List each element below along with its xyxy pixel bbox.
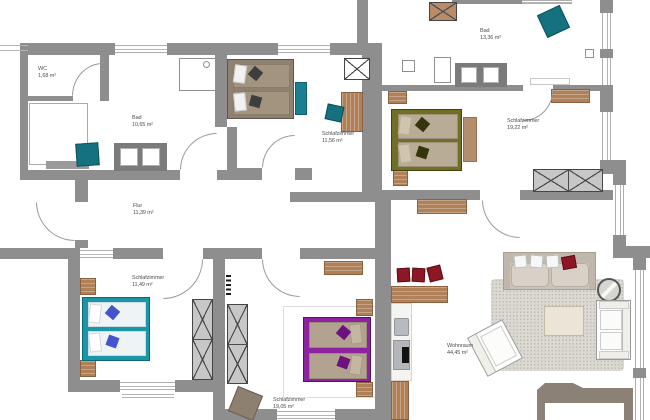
wall: [613, 174, 626, 185]
pillow: [546, 255, 560, 269]
pillow: [88, 303, 102, 323]
room-area: 11,39 m²: [133, 210, 154, 217]
door-arc: [180, 133, 217, 170]
wardrobe: [227, 304, 248, 384]
basin: [461, 67, 477, 83]
room-label-wc: WC 1,68 m²: [38, 66, 56, 79]
room-name: Schlafzimmer: [322, 131, 354, 138]
room-area: 19,22 m²: [507, 125, 539, 132]
bar-stool-red: [397, 268, 411, 283]
room-label-schlafzimmer-top: Schlafzimmer 11,56 m²: [322, 131, 354, 144]
bathtub: [434, 57, 451, 83]
pillow: [233, 92, 247, 111]
wardrobe-section: [228, 305, 247, 344]
pillow: [398, 143, 413, 163]
wardrobe-section: [193, 339, 212, 379]
chair-teal: [325, 103, 345, 122]
sofa-armrest: [589, 253, 595, 289]
sofa-seat: [600, 332, 622, 350]
sofa-backrest: [622, 305, 630, 355]
room-label-schlafzimmer-bottom-middle: Schlafzimmer 19,05 m²: [273, 397, 305, 410]
wall: [613, 246, 650, 258]
window: [635, 270, 644, 368]
wardrobe-section: [228, 344, 247, 384]
side-table-round: [597, 278, 621, 302]
room-label-schlafzimmer-right: Schlafzimmer 19,22 m²: [507, 118, 539, 131]
shaft-symbol: [344, 58, 370, 80]
room-name: Wohnraum: [447, 343, 473, 350]
wall: [600, 49, 613, 58]
kitchen-oven: [402, 347, 409, 363]
wall: [375, 192, 391, 420]
door-arc: [72, 63, 103, 96]
wall: [600, 0, 613, 13]
double-washbasin: [455, 63, 507, 87]
sideboard: [324, 261, 363, 275]
wall: [213, 248, 225, 420]
pillow: [349, 323, 364, 344]
room-area: 13,36 m²: [480, 35, 501, 42]
wall: [335, 409, 376, 420]
double-washbasin: [114, 143, 167, 171]
door-arc: [163, 259, 203, 299]
wardrobe: [192, 299, 213, 380]
nightstand: [356, 382, 373, 397]
wardrobe-section: [534, 170, 568, 191]
coat-hooks: [226, 275, 231, 296]
room-area: 19,05 m²: [273, 404, 305, 411]
wall: [633, 258, 646, 270]
wall: [633, 368, 646, 378]
coffee-table: [544, 306, 584, 336]
room-name: Schlafzimmer: [507, 118, 539, 125]
wall: [167, 43, 278, 55]
wall: [225, 248, 262, 259]
wall: [600, 85, 613, 112]
wall: [357, 0, 368, 50]
window: [522, 0, 572, 4]
room-area: 10,65 m²: [132, 122, 153, 129]
pillow: [529, 254, 543, 268]
window: [277, 411, 335, 419]
window-sill-lines: [122, 394, 174, 398]
window: [602, 58, 611, 85]
sideboard: [551, 89, 590, 103]
window: [602, 112, 611, 160]
pillow: [88, 332, 102, 352]
window: [602, 13, 611, 49]
room-label-wohnraum: Wohnraum 44,45 m²: [447, 343, 473, 356]
wall: [28, 96, 73, 101]
window: [115, 45, 167, 53]
floor-plan: WC 1,68 m² Bad 10,65 m² Schlafzimmer 11,…: [0, 0, 650, 420]
wardrobe-section: [193, 300, 212, 339]
wall: [175, 380, 215, 392]
room-label-schlafzimmer-bottom-left: Schlafzimmer 11,49 m²: [132, 275, 164, 288]
wall: [113, 248, 163, 259]
nightstand: [80, 278, 96, 295]
wardrobe: [533, 169, 603, 192]
double-bed-olive: [391, 109, 462, 171]
pillow: [233, 64, 247, 83]
room-label-flur: Flur 11,39 m²: [133, 203, 154, 216]
basin: [120, 148, 138, 166]
wall: [20, 170, 180, 180]
nightstand: [356, 299, 373, 316]
room-label-bad-left: Bad 10,65 m²: [132, 115, 153, 128]
sofa-large: [503, 252, 596, 290]
room-area: 1,68 m²: [38, 73, 56, 80]
entrance-door-arc: [36, 202, 75, 241]
door-arc: [262, 135, 295, 168]
shaft-symbol-wood: [429, 2, 457, 21]
room-name: Schlafzimmer: [132, 275, 164, 282]
doormat: [417, 199, 467, 214]
wall: [600, 160, 626, 174]
sofa-armrest: [504, 253, 510, 289]
window: [80, 250, 113, 258]
room-area: 11,49 m²: [132, 282, 164, 289]
nightstand: [388, 91, 407, 104]
wall: [75, 180, 88, 202]
window: [635, 378, 644, 420]
basin: [483, 67, 499, 83]
wall: [75, 240, 88, 248]
pillow-red: [561, 255, 577, 270]
double-bed-teal: [82, 297, 150, 361]
wall: [613, 235, 626, 246]
desk: [341, 92, 363, 132]
bedside-runner-teal: [295, 82, 307, 115]
sofa-armrest: [599, 301, 629, 309]
nightstand: [393, 170, 408, 186]
stool-teal: [537, 5, 570, 38]
bedside-rug: [463, 117, 477, 162]
shower: [179, 58, 216, 91]
room-label-bad-right: Bad 13,36 m²: [480, 28, 501, 41]
window: [278, 45, 330, 53]
wall: [28, 43, 115, 55]
wall: [227, 168, 262, 180]
bar-stool-red: [412, 268, 426, 283]
wall: [452, 0, 522, 4]
wall: [68, 250, 80, 392]
stool-teal: [75, 142, 100, 167]
nightstand: [80, 360, 96, 377]
kitchen-sink: [394, 318, 409, 336]
wall: [20, 43, 28, 180]
sofa-seat: [600, 310, 622, 330]
room-area: 11,56 m²: [322, 138, 354, 145]
sofa-white: [596, 300, 631, 360]
wall: [215, 55, 227, 127]
double-bed-brown: [227, 59, 294, 119]
room-name: Schlafzimmer: [273, 397, 305, 404]
wall: [295, 168, 312, 180]
sofa-armrest: [599, 351, 629, 359]
terrace-parapet: [537, 383, 633, 420]
window: [120, 382, 175, 390]
wardrobe-section: [568, 170, 603, 191]
double-bed-purple: [303, 317, 371, 382]
pillow: [513, 254, 527, 268]
bath-bench: [530, 78, 570, 85]
shaft-x: [345, 59, 369, 79]
door-arc: [523, 91, 553, 121]
basin: [142, 148, 160, 166]
railing-lines: [0, 45, 28, 51]
toilet: [402, 60, 415, 72]
kitchen-cabinet: [391, 381, 409, 420]
shower-drain: [203, 61, 210, 68]
window: [615, 185, 624, 235]
wall: [300, 248, 376, 259]
shaft-x: [430, 3, 456, 20]
bar-stool-red: [426, 265, 443, 283]
door-arc: [482, 200, 520, 238]
kitchen-counter: [391, 286, 448, 303]
wall-sink: [585, 49, 594, 58]
room-area: 44,45 m²: [447, 350, 473, 357]
wall: [68, 380, 120, 392]
door-arc: [262, 259, 300, 297]
